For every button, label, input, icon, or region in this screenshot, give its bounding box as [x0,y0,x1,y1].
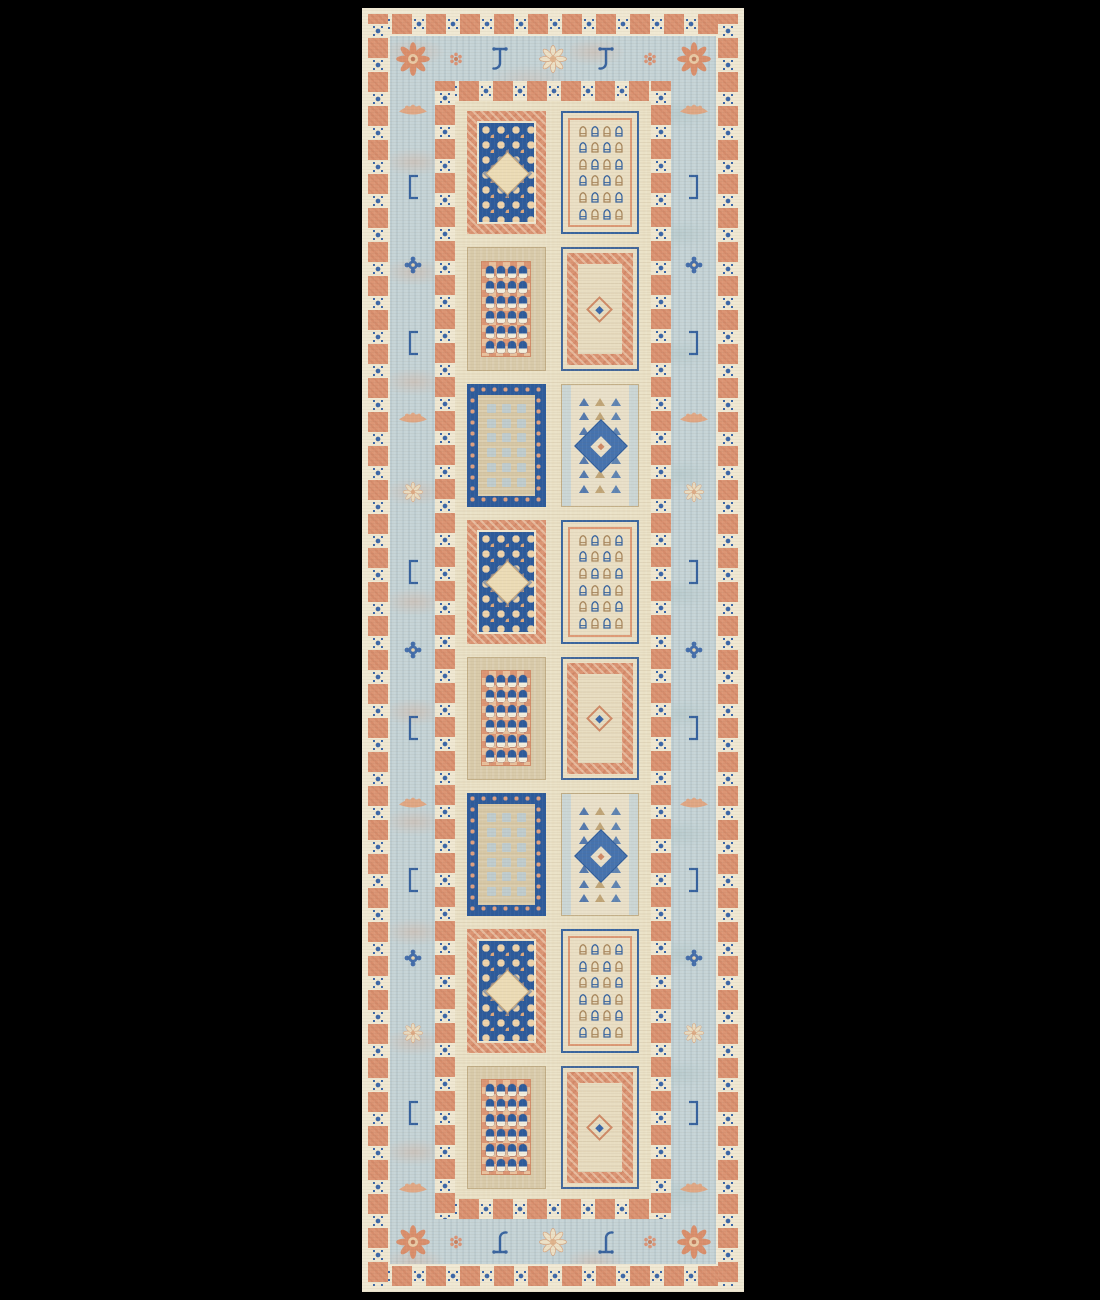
palmette-small-motif [402,481,424,503]
hook-motif [490,45,510,73]
bell-motif [519,296,527,308]
bracket-motif [687,173,701,201]
bracket-motif [406,714,420,742]
bell-motif [519,705,527,717]
bell-motif [497,675,505,687]
hook-motif [596,45,616,73]
boat-motif [678,412,710,426]
triangle-motif [611,485,621,493]
boteh-motif [613,141,625,154]
bell-motif [486,1144,494,1156]
bell-motif [508,735,516,747]
pale-square-motif [502,843,511,852]
field-panel-bells [467,247,546,370]
boteh-motif [589,141,601,154]
bell-motif [486,735,494,747]
boteh-motif [601,534,613,547]
boteh-motif [577,600,589,613]
diamond-panel [561,384,640,507]
main-border-top [435,36,671,81]
bell-motif [497,735,505,747]
boteh-motif [577,567,589,580]
field-panel-trellis [467,929,546,1052]
boteh-motif [577,943,589,956]
boteh-motif [601,600,613,613]
bell-motif [486,750,494,762]
boteh-frame [561,111,640,234]
boteh-motif [613,993,625,1006]
boteh-motif [589,943,601,956]
medallion-gem [586,296,613,323]
bell-motif [486,675,494,687]
pale-square-motif [517,858,526,867]
boteh-motif [589,617,601,630]
boteh-motif [601,158,613,171]
pale-square-motif [487,872,496,881]
bell-motif [497,1129,505,1141]
medallion-gem [586,1114,613,1141]
bell-motif [497,341,505,353]
outer-guard-top [368,14,738,34]
bell-motif [519,675,527,687]
boteh-motif [613,584,625,597]
bell-motif [486,326,494,338]
trellis-center-diamond [485,152,529,196]
boteh-grid [568,118,633,227]
triangle-motif [611,398,621,406]
boteh-grid [568,936,633,1045]
trellis-coral-frame [467,111,546,234]
triangle-motif [595,485,605,493]
pale-square-motif [487,858,496,867]
medallion-coral-band [567,253,634,364]
field-panel-trellis [467,111,546,234]
bracket-motif [687,1099,701,1127]
medallion-navy-frame [561,1066,640,1189]
boteh-motif [601,584,613,597]
boteh-motif [613,158,625,171]
boteh-motif [589,600,601,613]
boteh-motif [589,550,601,563]
boteh-motif [577,976,589,989]
triangle-motif [611,412,621,420]
field-panel-checker [467,384,546,507]
boteh-motif [601,960,613,973]
main-border-corner [671,1219,716,1264]
medallion-center-field [578,674,623,763]
bell-motif [519,750,527,762]
boteh-motif [601,191,613,204]
pale-square-motif [487,843,496,852]
boteh-motif [577,617,589,630]
bracket-motif [687,558,701,586]
main-border-right [671,76,716,1224]
pale-square-motif [487,404,496,413]
boat-motif [397,104,429,118]
pale-square-motif [517,463,526,472]
bell-motif [508,341,516,353]
boteh-motif [613,1026,625,1039]
rosette-blue-motif [404,949,422,967]
bell-motif [519,281,527,293]
boteh-motif [589,1009,601,1022]
trellis-coral-frame [467,520,546,643]
pale-square-motif [487,448,496,457]
bracket-motif [687,329,701,357]
pale-square-motif [517,448,526,457]
bell-motif [486,705,494,717]
field-panel-boteh [561,520,640,643]
boteh-motif [601,617,613,630]
pale-square-motif [517,478,526,487]
boteh-motif [577,208,589,221]
boteh-motif [613,174,625,187]
boteh-motif [589,158,601,171]
pale-square-motif [487,813,496,822]
pale-square-motif [502,872,511,881]
boteh-motif [613,208,625,221]
triangle-motif [579,412,589,420]
boteh-motif [589,976,601,989]
bells-panel-ground [467,657,546,780]
boteh-motif [577,125,589,138]
trellis-lattice [477,939,536,1042]
bell-motif [519,266,527,278]
bell-motif [486,296,494,308]
pale-square-motif [487,478,496,487]
triangle-motif [579,485,589,493]
bell-motif [519,1084,527,1096]
triangle-motif [595,398,605,406]
hook-motif [490,1228,510,1256]
bell-motif [508,1159,516,1171]
bell-motif [497,281,505,293]
pale-square-motif [502,828,511,837]
bell-motif [519,690,527,702]
pale-square-motif [487,887,496,896]
boteh-motif [601,125,613,138]
main-border-bottom [435,1219,671,1264]
bell-motif [486,266,494,278]
boteh-motif [589,567,601,580]
pale-square-motif [517,433,526,442]
bell-motif [508,1114,516,1126]
rosette-coral-motif [643,52,657,66]
bracket-motif [406,329,420,357]
boteh-motif [601,174,613,187]
field-panel-bells [467,657,546,780]
bell-motif [519,735,527,747]
main-border-left [390,76,435,1224]
checker-dotted-frame [467,793,546,916]
boat-motif [397,1182,429,1196]
boteh-motif [589,584,601,597]
pale-square-motif [502,419,511,428]
boat-motif [397,797,429,811]
boteh-motif [589,125,601,138]
bell-motif [486,311,494,323]
bell-motif [486,1159,494,1171]
bell-motif [508,266,516,278]
bell-motif [497,690,505,702]
bracket-motif [406,1099,420,1127]
pale-square-motif [517,419,526,428]
pale-square-motif [502,448,511,457]
field-panel-medallion [561,247,640,370]
bell-motif [486,1099,494,1111]
bell-motif [508,675,516,687]
rosette-blue-motif [685,256,703,274]
outer-guard-band [368,14,738,1286]
bells-panel-ground [467,247,546,370]
boteh-motif [613,567,625,580]
boteh-motif [613,617,625,630]
boteh-motif [601,1009,613,1022]
boteh-motif [589,1026,601,1039]
bell-motif [486,281,494,293]
bell-motif [508,720,516,732]
boteh-motif [577,174,589,187]
pale-square-motif [502,404,511,413]
boat-motif [678,104,710,118]
bell-motif [497,750,505,762]
palmette-small-motif [402,1022,424,1044]
medallion-coral-band [567,1072,634,1183]
photo-background [0,0,1100,1300]
inner-guard-top [435,81,671,101]
bracket-motif [687,866,701,894]
inner-guard-left [435,81,455,1219]
pale-square-motif [502,858,511,867]
trellis-center-diamond [485,970,529,1014]
boteh-motif [613,1009,625,1022]
bell-motif [508,296,516,308]
bell-motif [508,1084,516,1096]
bell-motif [508,311,516,323]
diamond-panel [561,793,640,916]
rosette-coral-motif [449,1235,463,1249]
boteh-motif [613,191,625,204]
field-panel-boteh [561,929,640,1052]
boteh-motif [601,550,613,563]
pale-square-motif [517,843,526,852]
boteh-motif [601,976,613,989]
inner-guard-bottom [435,1199,671,1219]
bell-motif [497,705,505,717]
pale-square-motif [502,887,511,896]
boteh-motif [589,191,601,204]
bell-motif [497,720,505,732]
boteh-motif [577,1026,589,1039]
pale-square-motif [517,404,526,413]
boteh-motif [613,125,625,138]
medallion-center-field [578,1083,623,1172]
hook-motif [596,1228,616,1256]
triangle-motif [595,894,605,902]
main-border [388,34,718,1266]
bell-motif [508,326,516,338]
palmette-small-motif [683,481,705,503]
bell-motif [486,720,494,732]
pale-square-motif [517,887,526,896]
bell-motif [508,1129,516,1141]
triangle-motif [611,880,621,888]
trellis-lattice [477,121,536,224]
bell-motif [519,1144,527,1156]
bell-motif [497,266,505,278]
boteh-motif [601,993,613,1006]
rosette-blue-motif [685,641,703,659]
main-border-corner [390,1219,435,1264]
boteh-motif [577,550,589,563]
boat-motif [678,797,710,811]
field-panel-diamond [561,384,640,507]
sunburst-motif [395,41,431,77]
bells-coral-block [481,1079,531,1175]
bells-coral-block [481,261,531,357]
bell-motif [497,296,505,308]
boteh-motif [613,534,625,547]
pale-square-motif [502,433,511,442]
triangle-motif [611,807,621,815]
bell-motif [486,1129,494,1141]
bell-motif [497,326,505,338]
boteh-frame [561,520,640,643]
checker-inner-field [478,395,535,496]
boteh-motif [601,208,613,221]
bell-motif [497,1114,505,1126]
pale-square-motif [487,433,496,442]
bell-motif [519,1114,527,1126]
bell-motif [508,281,516,293]
triangle-motif [579,880,589,888]
palmette-motif [538,44,568,74]
rosette-coral-motif [643,1235,657,1249]
boteh-motif [601,141,613,154]
trellis-coral-frame [467,929,546,1052]
boteh-motif [613,943,625,956]
pale-square-motif [502,478,511,487]
triangle-motif [611,822,621,830]
bell-motif [519,1129,527,1141]
bracket-motif [406,558,420,586]
boat-motif [397,412,429,426]
boat-motif [678,1182,710,1196]
triangle-motif [595,807,605,815]
boteh-motif [589,960,601,973]
inner-guard-right [651,81,671,1219]
boteh-grid [568,527,633,636]
pale-square-motif [487,419,496,428]
boteh-frame [561,929,640,1052]
boteh-motif [577,191,589,204]
field-panel-diamond [561,793,640,916]
bell-motif [508,705,516,717]
boteh-motif [589,174,601,187]
bells-panel-ground [467,1066,546,1189]
pale-square-motif [487,828,496,837]
palmette-small-motif [683,1022,705,1044]
boteh-motif [577,1009,589,1022]
boteh-motif [577,993,589,1006]
triangle-motif [595,822,605,830]
triangle-motif [611,894,621,902]
boteh-motif [601,1026,613,1039]
pale-square-motif [517,828,526,837]
bell-motif [508,1099,516,1111]
palmette-motif [538,1227,568,1257]
triangle-motif [579,470,589,478]
boteh-motif [577,960,589,973]
bell-motif [486,1084,494,1096]
bell-motif [497,311,505,323]
boteh-motif [613,976,625,989]
bell-motif [486,1114,494,1126]
boteh-motif [589,534,601,547]
rosette-blue-motif [404,256,422,274]
pale-square-motif [502,813,511,822]
field-panel-bells [467,1066,546,1189]
bell-motif [497,1099,505,1111]
rosette-blue-motif [685,949,703,967]
triangle-motif [579,807,589,815]
medallion-gem [586,705,613,732]
bell-motif [486,690,494,702]
field-panel-trellis [467,520,546,643]
rosette-coral-motif [449,52,463,66]
rug [362,8,744,1292]
bell-motif [508,750,516,762]
boteh-motif [577,534,589,547]
boteh-motif [613,960,625,973]
field [455,101,651,1199]
pale-square-motif [487,463,496,472]
triangle-motif [579,822,589,830]
medallion-navy-frame [561,247,640,370]
field-panel-medallion [561,657,640,780]
pale-square-motif [502,463,511,472]
bell-motif [519,1099,527,1111]
boteh-motif [601,567,613,580]
trellis-center-diamond [485,561,529,605]
checker-dotted-frame [467,384,546,507]
outer-guard-bottom [368,1266,738,1286]
medallion-coral-band [567,663,634,774]
boteh-motif [613,550,625,563]
boteh-motif [577,141,589,154]
rosette-blue-motif [404,641,422,659]
sunburst-motif [676,41,712,77]
field-panel-medallion [561,1066,640,1189]
triangle-motif [579,894,589,902]
boteh-motif [589,993,601,1006]
triangle-motif [611,470,621,478]
pale-square-motif [517,813,526,822]
bell-motif [497,1084,505,1096]
sunburst-motif [395,1224,431,1260]
bell-motif [519,311,527,323]
boteh-motif [577,158,589,171]
bells-coral-block [481,670,531,766]
sunburst-motif [676,1224,712,1260]
pale-square-motif [517,872,526,881]
bell-motif [519,326,527,338]
outer-guard-left [368,14,388,1286]
outer-guard-right [718,14,738,1286]
bell-motif [497,1159,505,1171]
bell-motif [519,720,527,732]
boteh-motif [589,208,601,221]
